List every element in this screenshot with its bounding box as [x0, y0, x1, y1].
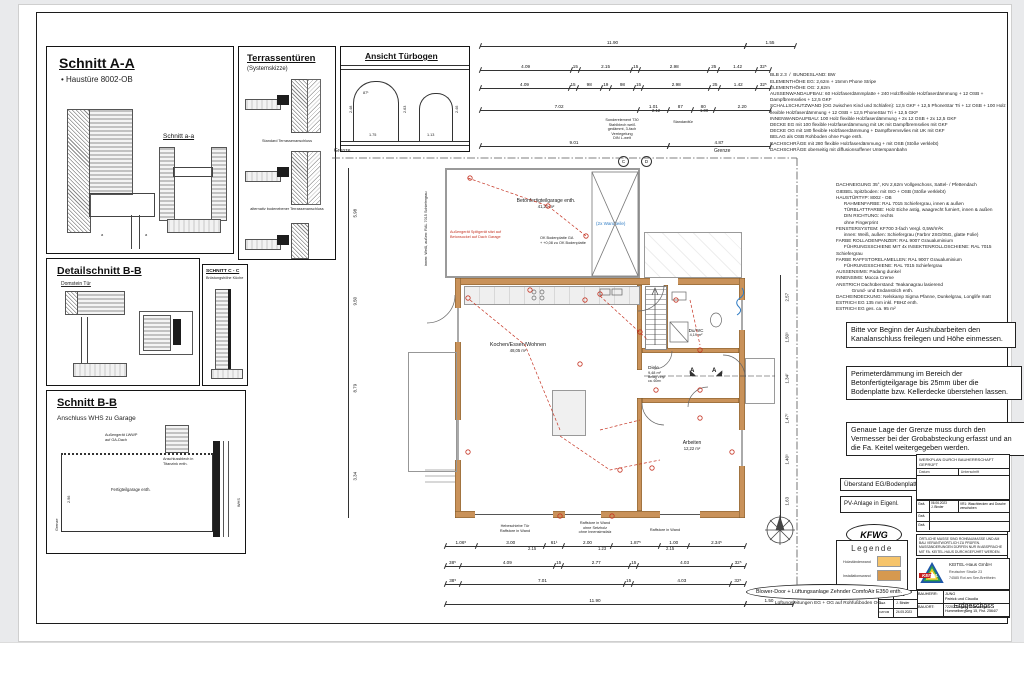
detail-bb-title: Detailschnitt B-B — [57, 265, 142, 277]
frame-profile-shape — [89, 193, 155, 217]
detail-bb-subtitle: Domstein Tür — [61, 281, 91, 287]
dim-value: 4.09 — [460, 560, 554, 566]
garage-ok-note: OK Bodenplatte GA + +0,08 zu OK Bodenpla… — [540, 236, 604, 245]
room-duwc-area: 4,19 m² — [676, 333, 716, 337]
note-pv-anlage: PV-Anlage in Eigenl. — [840, 496, 912, 513]
revision-table: Geä. 06.06.2023J. Binder VR1: Waschbecke… — [916, 500, 1010, 532]
werkplan-unterschrift-label: Unterschrift — [959, 469, 1009, 475]
room-diele-extra: Belag Vinyl ca. 60m² — [648, 375, 692, 383]
room-diele: Diele 9,48 m² Belag Vinyl ca. 60m² — [648, 366, 692, 383]
dim-value: 1.40⁵ — [785, 453, 790, 465]
tuerbogen-title: Ansicht Türbogen — [365, 51, 438, 61]
rev-date-name: 06.06.2023J. Binder — [930, 501, 959, 512]
lintel-line — [341, 65, 469, 66]
dim-value: 19 — [601, 82, 610, 88]
entry-door-opening — [650, 278, 678, 285]
floor-line — [341, 141, 469, 142]
dim-value: 1.42 — [719, 64, 757, 70]
spec-line: DACHSCHRÄGE oberseitig mit diffusionsoff… — [770, 147, 1012, 153]
profile-block-shape — [173, 319, 181, 345]
dim-height: 2.96 — [67, 496, 72, 503]
titleblock-warning: ÖRTLICHE MASSE SIND ROHBAUMASSE UND AM B… — [916, 534, 1008, 556]
dim-value: 8.79 — [353, 381, 358, 393]
wall-line — [228, 441, 229, 537]
dim-value: 32⁵ — [756, 64, 770, 70]
garage-red-note: Außengerät Splitgerät sitzt auf Betonsoc… — [450, 230, 508, 239]
bauort-city: 72202 Nagold-Vollmaringen — [945, 605, 989, 609]
dim-row-top-2: 4.0915981998152.98251.4232⁵ — [480, 82, 770, 89]
spec-line: FÜHRUNGSSCHIENE MIT 4x INSEKTENROLLOSCHI… — [836, 244, 1016, 256]
wall-top — [455, 278, 745, 285]
spec-block-top: BLB 2.3 / BUNDESLAND: BWELEMENTHÖHE EG: … — [770, 60, 1012, 153]
bottom-annotation-3: Raffstore in Wand — [646, 528, 684, 533]
note-perimeterdaemmung: Perimeterdämmung im Bereich der Betonfer… — [846, 366, 1022, 400]
window-bottom-1 — [565, 511, 601, 518]
box-terrassentueren: Terrassentüren (Systemskizze) Standard T… — [238, 46, 336, 260]
dim-bsub-2: 1.23 — [598, 546, 606, 551]
terrassen-subtitle: (Systemskizze) — [247, 66, 288, 72]
wall-hatch-shape — [67, 109, 91, 233]
dim-value: 5.98 — [353, 206, 358, 218]
dim-sub-1: 2.12 — [652, 108, 660, 113]
dim-value: 32⁵ — [731, 578, 745, 584]
huawei-notes-footer-bar[interactable]: Aus Huawei Notizen — [0, 642, 1024, 690]
dim-row-top-overall-right: 1.55 — [745, 40, 795, 47]
wall-wing-h2 — [642, 398, 739, 403]
floor-slab-shape — [167, 219, 221, 233]
lintel-line — [341, 69, 469, 70]
wall-hatch-shape — [307, 151, 321, 205]
arch-dim: 87¹ — [363, 91, 369, 96]
legend-box: Legende Holzständerwand Installationswan… — [836, 540, 908, 590]
staircase — [645, 286, 667, 350]
label-whs: WHS — [237, 498, 242, 507]
dim-value: 7.02 — [480, 104, 638, 110]
garage-door-spec-note: innen: Weiß, außen: RAL 7015 Schiefergra… — [424, 191, 429, 266]
grid-bubble-c: C — [618, 156, 629, 167]
werkplan-table: WERKPLAN DURCH BAUHERRSCHAFT GEPRÜFT Dat… — [916, 454, 1010, 500]
dim-value: 87 — [669, 104, 693, 110]
spec-line: SCHALLSCHUTZWAND (OG zwischen Kind und S… — [770, 103, 1012, 115]
grenze-label-left: Grenze — [334, 148, 350, 154]
room-arbeiten-area: 12,22 m² — [668, 446, 716, 451]
whs-wall-shape — [213, 441, 220, 537]
window-left-1 — [455, 308, 461, 342]
bauherr-sub: Patrick und Claudia — [945, 597, 978, 601]
door-leaf-line — [131, 215, 132, 249]
top-annotation-2: Standardtür — [668, 120, 698, 125]
dim-row-bottom-4a: 11.90 — [445, 598, 745, 605]
schnitt-aa-title: Schnitt A-A — [59, 55, 135, 71]
dim-row-top-4b: 4.87 — [668, 140, 770, 147]
dim-row-bottom-4b: 1.50 — [745, 598, 793, 605]
box-tuerbogen: Ansicht Türbogen 87¹ 2.48 1.75 2.63 2.46… — [340, 46, 470, 152]
keitel-logo-icon: KEITEL — [919, 561, 945, 587]
spec-line: ESTRICH EG ges. ca. 95 m² — [836, 306, 1016, 312]
garage-ok2: + +0,08 zu OK Bodenplatte — [540, 241, 604, 246]
dim-value: 38⁵ — [445, 578, 461, 584]
dim-value: 2.77 — [563, 560, 630, 566]
legend-title: Legende — [837, 544, 907, 553]
schnitt-cc-subtitle: Brüstungshöhe Küche — [206, 276, 244, 281]
dim-value: 1.34⁷ — [785, 371, 790, 383]
arch-dim: 2.46 — [455, 106, 460, 113]
svg-text:KEITEL: KEITEL — [922, 573, 939, 578]
dim-row-bottom-2: 38⁵4.09152.77154.0332⁵ — [445, 560, 745, 567]
arch-dim: 2.48 — [349, 106, 354, 113]
note-kanalanschluss: Bitte vor Beginn der Aushubarbeiten den … — [846, 322, 1016, 348]
bottom-annotation-2: Raffstore in Wand ohne Setzholz ohne Inn… — [572, 521, 618, 535]
terrassen-caption-1: Standard Terrassenanschluss — [245, 139, 329, 144]
dim-value: 4.03 — [633, 578, 731, 584]
board-line-shape — [228, 289, 231, 375]
note-grenze: Genaue Lage der Grenze muss durch den Ve… — [846, 422, 1024, 456]
wall-hatch-shape — [307, 79, 321, 133]
rev-note: VR1: Waschbecken und Dusche verschoben — [959, 501, 1009, 512]
dim-value: 1.47⁷ — [785, 412, 790, 424]
dim-col-right: 2.571.50⁵1.34⁷1.47⁷1.40⁵1.63 — [780, 275, 794, 520]
room-duwc: Du/WC 4,19 m² — [676, 328, 716, 337]
kitchen-island — [552, 390, 586, 436]
dim-row-bottom-1: 1.06⁵3.0061¹2.001.87⁵1.002.34⁵ — [445, 540, 745, 547]
dim-value: 98 — [577, 82, 601, 88]
wall-hatch-shape — [291, 223, 309, 259]
dim-bsub-3: 2.15 — [666, 546, 674, 551]
legend-item-label: Holzständerwand — [843, 560, 871, 564]
garage-label: Betonfertigteilgarage enth. 41,21 m² — [488, 198, 604, 209]
room-arbeiten: Arbeiten 12,22 m² — [668, 440, 716, 451]
window-right-2 — [739, 300, 745, 330]
dim-value: 1.50⁵ — [785, 330, 790, 342]
legend-item-swatch — [877, 556, 901, 567]
date-label: DATUM — [879, 609, 894, 617]
bauort-street: Hummelbergweg 15, Flst. 2564/7 — [945, 609, 998, 613]
door-arch-right — [419, 93, 453, 142]
terrace-slab-shape — [245, 99, 281, 110]
floor-slab-shape — [73, 363, 127, 377]
entry-porch — [644, 232, 742, 278]
terrace-slab-shape — [245, 239, 281, 250]
threshold-block-shape — [277, 95, 289, 105]
arch-dim: 2.63 — [403, 106, 408, 113]
dim-value: 4.09 — [480, 82, 569, 88]
dim-value: 2.00 — [563, 540, 611, 546]
dim-sub-2: 1.00 — [700, 108, 708, 113]
dim-value: 32⁵ — [757, 82, 770, 88]
dim-value: 4.87 — [668, 140, 770, 146]
dim-value: 2.57 — [785, 289, 790, 301]
company-street: Reutscher Straße 23 — [949, 570, 982, 574]
room-wohnen: Kochen/Essen/Wohnen 48,05 m² — [468, 342, 568, 353]
dim-value: 61¹ — [545, 540, 564, 546]
dim-value: 7.01 — [461, 578, 625, 584]
schnitt-cc-title: SCHNITT C - C — [206, 269, 239, 274]
spec-line: AUSSENWANDAUFBAU: 60 Holzfaserdämmplatte… — [770, 91, 1012, 103]
bauherr-name: JUNG — [945, 592, 955, 596]
dim-row-bottom-3: 38⁵7.01154.0332⁵ — [445, 578, 745, 585]
dim-value: 11.90 — [480, 40, 745, 46]
dim-row-top-overall-left: 11.90 — [480, 40, 745, 47]
label-aussengeraet: Außengerät LWWP auf GA-Dach — [105, 433, 159, 442]
door-line — [81, 317, 82, 363]
arch-dim: 1.75 — [369, 133, 376, 138]
dim-value: 2.34⁵ — [688, 540, 745, 546]
insulation-hatch-shape — [89, 109, 133, 195]
schnitt-bb-title: Schnitt B-B — [57, 397, 117, 409]
wall-line — [223, 441, 224, 537]
dim-value: 32⁵ — [731, 560, 745, 566]
insulation-hatch-shape — [143, 315, 171, 351]
dim-value: 2.15 — [579, 64, 631, 70]
outdoor-unit-shape — [165, 425, 189, 453]
dim-value: 4.03 — [638, 560, 731, 566]
window-bottom-2 — [660, 511, 700, 518]
label-fertiggarage: Fertigteilgarage enth. — [111, 487, 151, 492]
kitchen-counter — [464, 286, 640, 305]
company-block: KEITEL KEITEL-Haus GmbH Reutscher Straße… — [916, 558, 1010, 590]
section-marker-a2: A — [712, 368, 716, 374]
dim-value: 1.00 — [659, 540, 688, 546]
dim-value: 1.50 — [745, 598, 793, 604]
dim-value: 4.09 — [480, 64, 571, 70]
dim-row-top-1: 4.09152.15152.98251.4232⁵ — [480, 64, 770, 71]
jamb-hatch-shape — [159, 147, 175, 221]
dim-value: 9.50 — [353, 293, 358, 305]
dim-value: 2.98 — [640, 64, 709, 70]
company-city: 74585 Rot am See-Brettheim — [949, 576, 996, 580]
garage-blue-note: (2x Wandteile) — [596, 221, 625, 226]
terrace-slab-shape — [245, 171, 281, 182]
bottom-annotation-1: Hebeschiebe Tür Raffstore in Wand — [494, 524, 536, 533]
schnitt-aa-subtitle: • Haustüre 8002-OB — [61, 75, 133, 84]
dim-bsub-1: 2.15 — [528, 546, 536, 551]
door-line — [87, 317, 88, 363]
door-leaf-line — [139, 215, 140, 249]
legend-item-swatch — [877, 570, 901, 581]
werkplan-header: WERKPLAN DURCH BAUHERRSCHAFT GEPRÜFT — [917, 455, 1009, 469]
jamb-hatch-shape — [211, 147, 227, 221]
dim-row-top-3: 7.021.0187802.20 — [480, 104, 770, 111]
box-detailschnitt-bb: Detailschnitt B-B Domstein Tür — [46, 258, 200, 386]
marker-a: a — [101, 233, 103, 238]
grenze-label-right: Grenze — [714, 148, 730, 154]
section-marker-a1: A — [690, 368, 694, 374]
window-right-1 — [739, 430, 745, 466]
box-schnitt-aa: Schnitt A-A • Haustüre 8002-OB a a Schni… — [46, 46, 234, 254]
rev-empty — [930, 513, 1009, 521]
legend-item: Installationswand — [843, 570, 901, 581]
room-wohnen-area: 48,05 m² — [468, 348, 568, 353]
box-schnitt-cc: SCHNITT C - C Brüstungshöhe Küche — [202, 264, 248, 386]
dim-value: 11.90 — [445, 598, 745, 604]
werkplan-datum-label: Datum — [917, 469, 959, 475]
rev-label: Geä. — [917, 501, 930, 512]
dim-value: 1.87⁵ — [612, 540, 660, 546]
terrassen-caption-2: alternativ bodenebener Terrassenanschlus… — [243, 207, 331, 212]
floor-line — [341, 145, 469, 146]
dim-value: 15 — [569, 82, 577, 88]
dim-value: 38⁵ — [445, 560, 460, 566]
legend-items: Holzständerwand Installationswand — [837, 556, 907, 581]
company-name: KEITEL-Haus GmbH — [949, 562, 992, 567]
dim-value: 98 — [610, 82, 634, 88]
legend-item-label: Installationswand — [843, 574, 871, 578]
dim-row-top-4a: 9.01 — [480, 140, 668, 147]
grid-bubble-d: D — [641, 156, 652, 167]
schnitt-aa-inner-label: Schnitt a-a — [163, 133, 194, 140]
side-landing — [745, 358, 775, 404]
dim-value: 1.06⁵ — [445, 540, 477, 546]
wall-section-hatch — [215, 289, 229, 377]
box-schnitt-bb: Schnitt B-B Anschluss WHS zu Garage Auße… — [46, 390, 246, 554]
legend-item: Holzständerwand — [843, 556, 901, 567]
schnitt-bb-subtitle: Anschluss WHS zu Garage — [57, 415, 136, 422]
top-annotation-1: Sonderelement T30 Stahlblech weiß gedämm… — [598, 118, 646, 141]
rev-label-3: Geä. — [917, 522, 930, 530]
terrace-slab — [408, 352, 457, 472]
dim-value: 1.55 — [745, 40, 795, 46]
dim-value: 3.00 — [477, 540, 545, 546]
dim-value: 1.63 — [785, 494, 790, 506]
wall-interior-v2 — [637, 398, 642, 511]
dim-value: 2.98 — [643, 82, 710, 88]
spec-block-right: DACHNEIGUNG 35°, KN 2,62m Vollgeschoss, … — [836, 170, 1016, 313]
dim-col-left: 5.989.508.793.34 — [348, 168, 362, 518]
lintel-hatch-shape — [77, 291, 125, 315]
label-anschlussblech: Anschlussblech in Titanzink enth. — [163, 457, 207, 466]
threshold-shape — [173, 167, 213, 177]
threshold-block-shape — [277, 235, 289, 245]
floor-slab-shape — [211, 369, 243, 379]
marker-a: a — [145, 233, 147, 238]
threshold-block-shape — [277, 167, 289, 177]
dim-value: 9.01 — [480, 140, 668, 146]
date-value: 24.05.2023 — [894, 609, 914, 617]
dim-value: 3.34 — [353, 468, 358, 480]
garage-area: 41,21 m² — [488, 204, 604, 209]
rev-empty — [930, 522, 1009, 530]
label-grenze: Grenze — [55, 519, 60, 531]
window-terrace-door — [475, 511, 553, 518]
werkplan-empty-row — [917, 476, 1009, 494]
dim-value: 2.20 — [714, 104, 770, 110]
rev-label-2: Geä. — [917, 513, 930, 521]
terrassen-title: Terrassentüren — [247, 53, 315, 64]
rev-name: J. Binder — [931, 505, 944, 509]
dim-value: 1.42 — [720, 82, 757, 88]
arch-dim: 1.13 — [427, 133, 434, 138]
